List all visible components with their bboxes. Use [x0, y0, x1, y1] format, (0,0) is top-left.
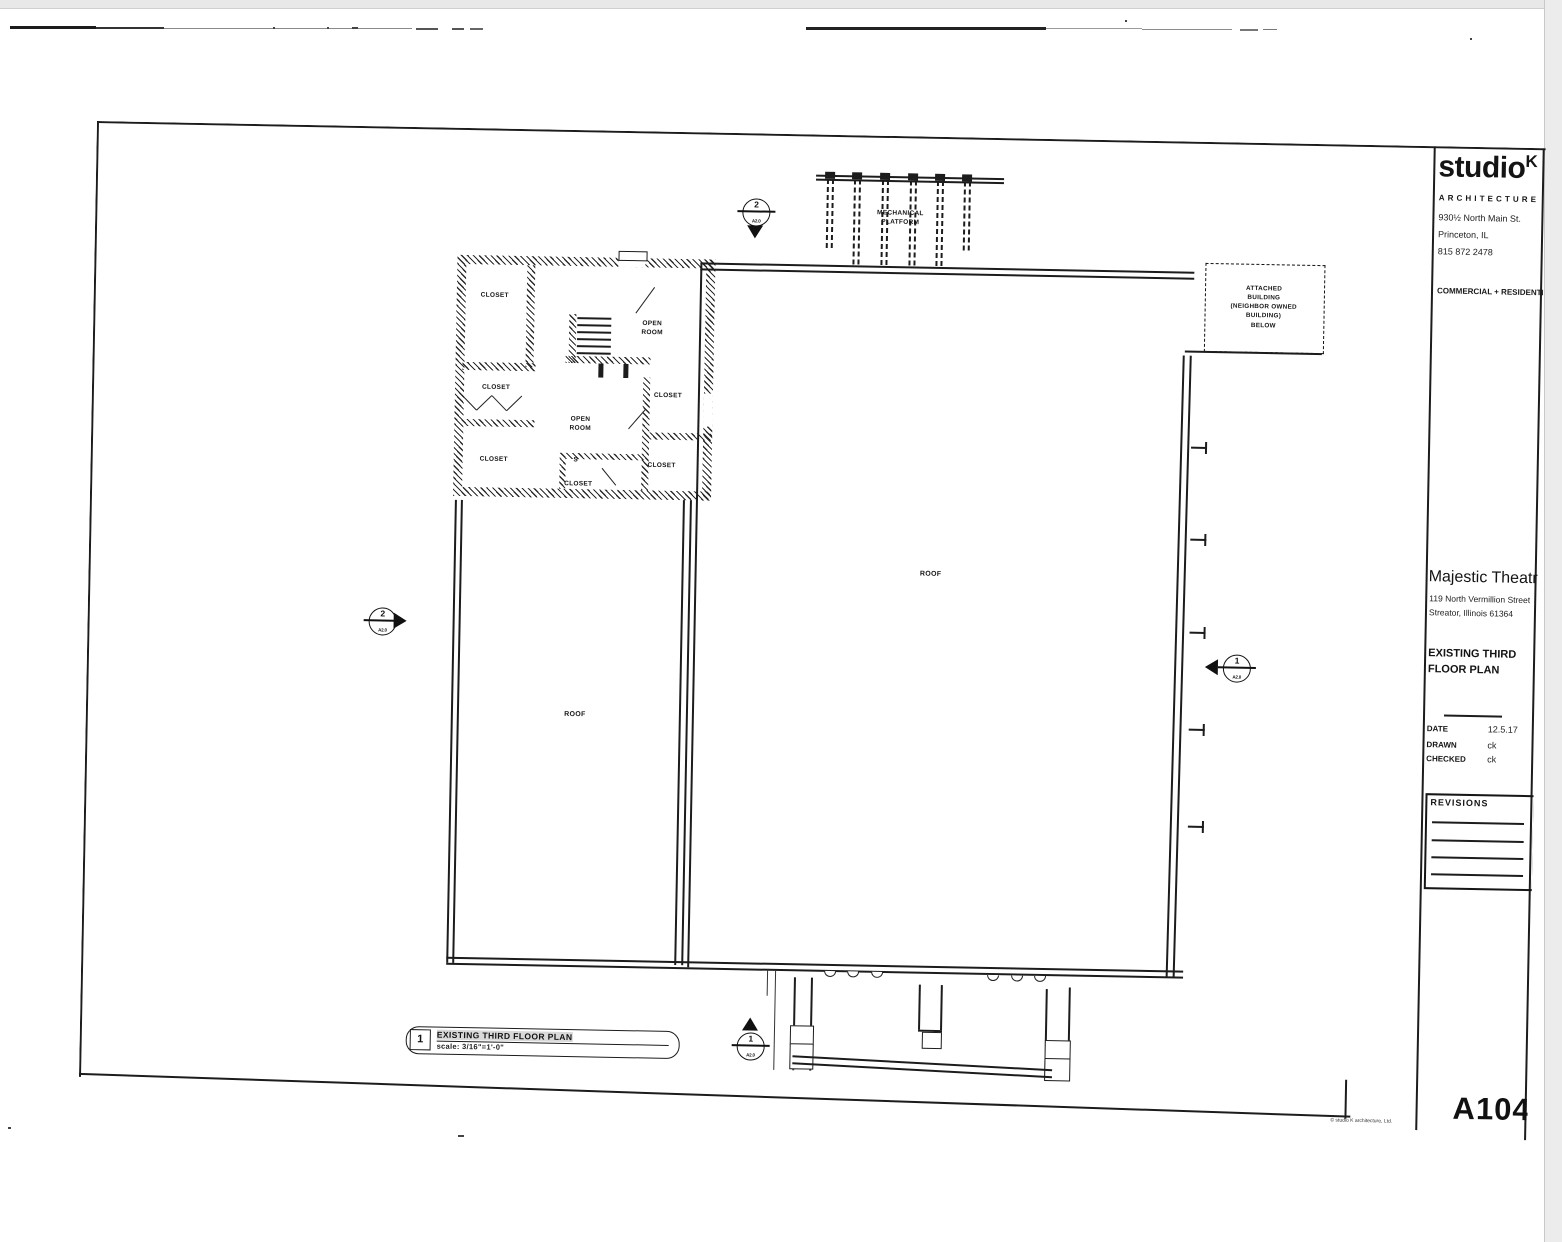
scan-scratch	[1142, 29, 1232, 30]
date-label: DATE	[1427, 724, 1448, 733]
scan-scratch	[470, 28, 483, 30]
stair-tread	[577, 338, 611, 340]
room-label-closet: CLOSET	[564, 479, 592, 489]
scan-speck	[8, 1127, 11, 1129]
room-label-closet: CLOSET	[647, 461, 675, 471]
stair-tread	[577, 331, 611, 333]
revision-row-line	[1431, 873, 1523, 876]
firm-address-line2: Princeton, IL	[1438, 229, 1489, 240]
titleblock-divider	[1415, 146, 1436, 1130]
platform-post	[940, 181, 943, 267]
facade-bump	[847, 971, 859, 977]
marquee-line	[940, 985, 942, 1030]
section-arrow-left	[1205, 659, 1218, 675]
revision-row-line	[1432, 839, 1524, 842]
scan-scratch	[96, 27, 164, 29]
marker-sheet-ref: A2.0	[737, 1052, 763, 1057]
firm-type: ARCHITECTURE	[1439, 193, 1539, 204]
section-arrow-up	[742, 1017, 758, 1030]
wall-hatch	[566, 356, 651, 365]
scan-scratch	[1240, 29, 1258, 31]
checked-value: ck	[1487, 754, 1496, 764]
door-swing	[476, 395, 492, 411]
marker-line	[1218, 666, 1256, 669]
room-label-s: S	[573, 455, 578, 465]
wall-hatch	[644, 432, 712, 440]
border-line	[97, 121, 1546, 150]
revisions-label: REVISIONS	[1430, 797, 1488, 808]
platform-post	[968, 181, 971, 251]
scan-scratch	[164, 28, 412, 29]
door-swing	[506, 396, 522, 412]
firm-name: studio	[1438, 150, 1526, 185]
room-label-open-room: OPEN ROOM	[569, 415, 591, 434]
scan-top-band	[0, 0, 1562, 9]
wall-hatch	[457, 255, 715, 269]
wall-opening	[703, 393, 713, 426]
platform-post	[831, 179, 834, 249]
door-jamb	[598, 363, 603, 377]
marquee-line	[767, 970, 769, 996]
facade-bump	[987, 975, 999, 981]
scan-scratch	[1046, 28, 1142, 29]
revision-row-line	[1431, 856, 1523, 859]
door-swing	[492, 395, 508, 411]
wall-hatch	[525, 265, 535, 367]
border-line	[79, 1073, 1350, 1118]
drawing-sheet: studioK ARCHITECTURE 930½ North Main St.…	[78, 121, 1546, 1160]
section-arrow-down	[747, 225, 763, 238]
marker-sheet-ref: A2.0	[1224, 674, 1250, 679]
scan-speck	[327, 27, 329, 29]
wall-hatch	[560, 453, 644, 461]
door-swing	[635, 287, 655, 314]
stair-tread	[577, 352, 611, 354]
wall-hatch	[453, 255, 467, 496]
platform-post	[852, 179, 855, 265]
platform-post	[857, 179, 860, 265]
section-marker-right: 1 A2.0	[1223, 654, 1252, 683]
door-jamb	[618, 251, 647, 262]
marquee-line	[918, 985, 920, 1030]
scan-speck	[1470, 38, 1472, 40]
room-label-closet: CLOSET	[654, 391, 682, 401]
firm-logo: studioK	[1438, 150, 1537, 186]
door-jamb	[623, 364, 628, 378]
drawing-scale: scale: 3/16"=1'-0"	[437, 1042, 505, 1052]
facade-bump	[871, 972, 883, 978]
door-swing	[602, 468, 617, 486]
marker-line	[732, 1044, 770, 1047]
column-tick	[1203, 724, 1205, 736]
firm-phone: 815 872 2478	[1438, 246, 1493, 257]
section-marker-bottom: 1 A2.0	[736, 1032, 765, 1061]
marker-line	[737, 210, 775, 213]
attached-building-label: ATTACHED BUILDING (NEIGHBOR OWNED BUILDI…	[1216, 283, 1312, 330]
section-marker-top: 2 A2.0	[742, 198, 771, 227]
drawn-label: DRAWN	[1426, 740, 1456, 750]
sheet-title: EXISTING THIRD FLOOR PLAN	[1428, 646, 1517, 680]
border-line	[1344, 1080, 1347, 1119]
platform-post	[935, 181, 938, 267]
scan-speck	[1125, 20, 1127, 22]
firm-tagline: COMMERCIAL + RESIDENTIAL	[1437, 286, 1546, 297]
door-swing	[462, 395, 478, 411]
stair-tread	[577, 324, 611, 326]
stair-tread	[577, 317, 611, 319]
marker-number: 1	[1224, 655, 1250, 665]
marquee-box	[922, 1032, 942, 1049]
project-address-line2: Streator, Illinois 61364	[1429, 607, 1513, 619]
drawing-number-box: 1	[410, 1029, 431, 1050]
room-cluster: CLOSET OPEN ROOM CLOSET CLOSET OPEN ROOM…	[453, 255, 715, 501]
scan-scratch	[10, 26, 96, 29]
mechanical-platform-label: MECHANICAL PLATFORM	[868, 208, 932, 228]
column-tick	[1202, 821, 1204, 833]
room-label-open-room: OPEN ROOM	[641, 319, 663, 338]
marquee-front-edge	[792, 1062, 1052, 1077]
scan-scratch	[416, 28, 438, 30]
section-arrow-right	[393, 613, 406, 629]
firm-address-line1: 930½ North Main St.	[1438, 212, 1521, 224]
facade-bump	[1011, 975, 1023, 981]
project-name: Majestic Theatre	[1428, 568, 1545, 588]
revision-row-line	[1432, 821, 1524, 824]
wall-hatch	[461, 419, 534, 427]
project-address-line1: 119 North Vermillion Street	[1429, 593, 1530, 605]
drawing-title-bar: 1 EXISTING THIRD FLOOR PLAN scale: 3/16"…	[405, 1026, 679, 1059]
sheet-number: A104	[1452, 1091, 1531, 1128]
column-tick	[1205, 442, 1207, 454]
room-label-closet: CLOSET	[481, 291, 509, 301]
column-tick	[1203, 627, 1205, 639]
marker-number: 2	[743, 199, 769, 209]
scan-speck	[273, 27, 275, 29]
firm-logo-k: K	[1525, 152, 1537, 171]
marker-number: 1	[738, 1033, 764, 1043]
scan-speck	[352, 27, 358, 29]
marker-sheet-ref: A2.0	[743, 218, 769, 223]
room-label-closet: CLOSET	[480, 455, 508, 465]
roof-label: ROOF	[920, 570, 942, 581]
roof-label: ROOF	[564, 710, 586, 721]
stair-tread	[577, 345, 611, 347]
marker-number: 2	[370, 608, 396, 618]
titleblock-rule	[1444, 714, 1502, 717]
date-value: 12.5.17	[1488, 724, 1518, 735]
scanned-sheet-page: studioK ARCHITECTURE 930½ North Main St.…	[0, 0, 1562, 1242]
scan-scratch	[1263, 29, 1277, 30]
border-line	[79, 121, 99, 1077]
drawn-value: ck	[1487, 740, 1496, 750]
marquee-line	[773, 970, 776, 1070]
platform-post	[826, 179, 829, 249]
platform-post	[963, 181, 966, 251]
wall-hatch	[462, 362, 535, 371]
wall-hatch	[702, 260, 716, 501]
building-wall	[700, 262, 1194, 273]
scan-scratch	[806, 27, 1046, 30]
checked-label: CHECKED	[1426, 754, 1466, 764]
drawing-number: 1	[411, 1033, 430, 1045]
room-label-closet: CLOSET	[482, 383, 510, 393]
facade-bump	[824, 971, 836, 977]
scan-scratch	[452, 28, 464, 30]
scan-right-band	[1544, 0, 1562, 1242]
section-marker-left: 2 A2.0	[368, 607, 397, 636]
column-tick	[1204, 534, 1206, 546]
copyright-note: © studio K architecture, Ltd.	[1330, 1117, 1392, 1124]
marker-sheet-ref: A2.0	[369, 627, 395, 632]
facade-bump	[1034, 976, 1046, 982]
revisions-box: REVISIONS	[1424, 793, 1536, 891]
